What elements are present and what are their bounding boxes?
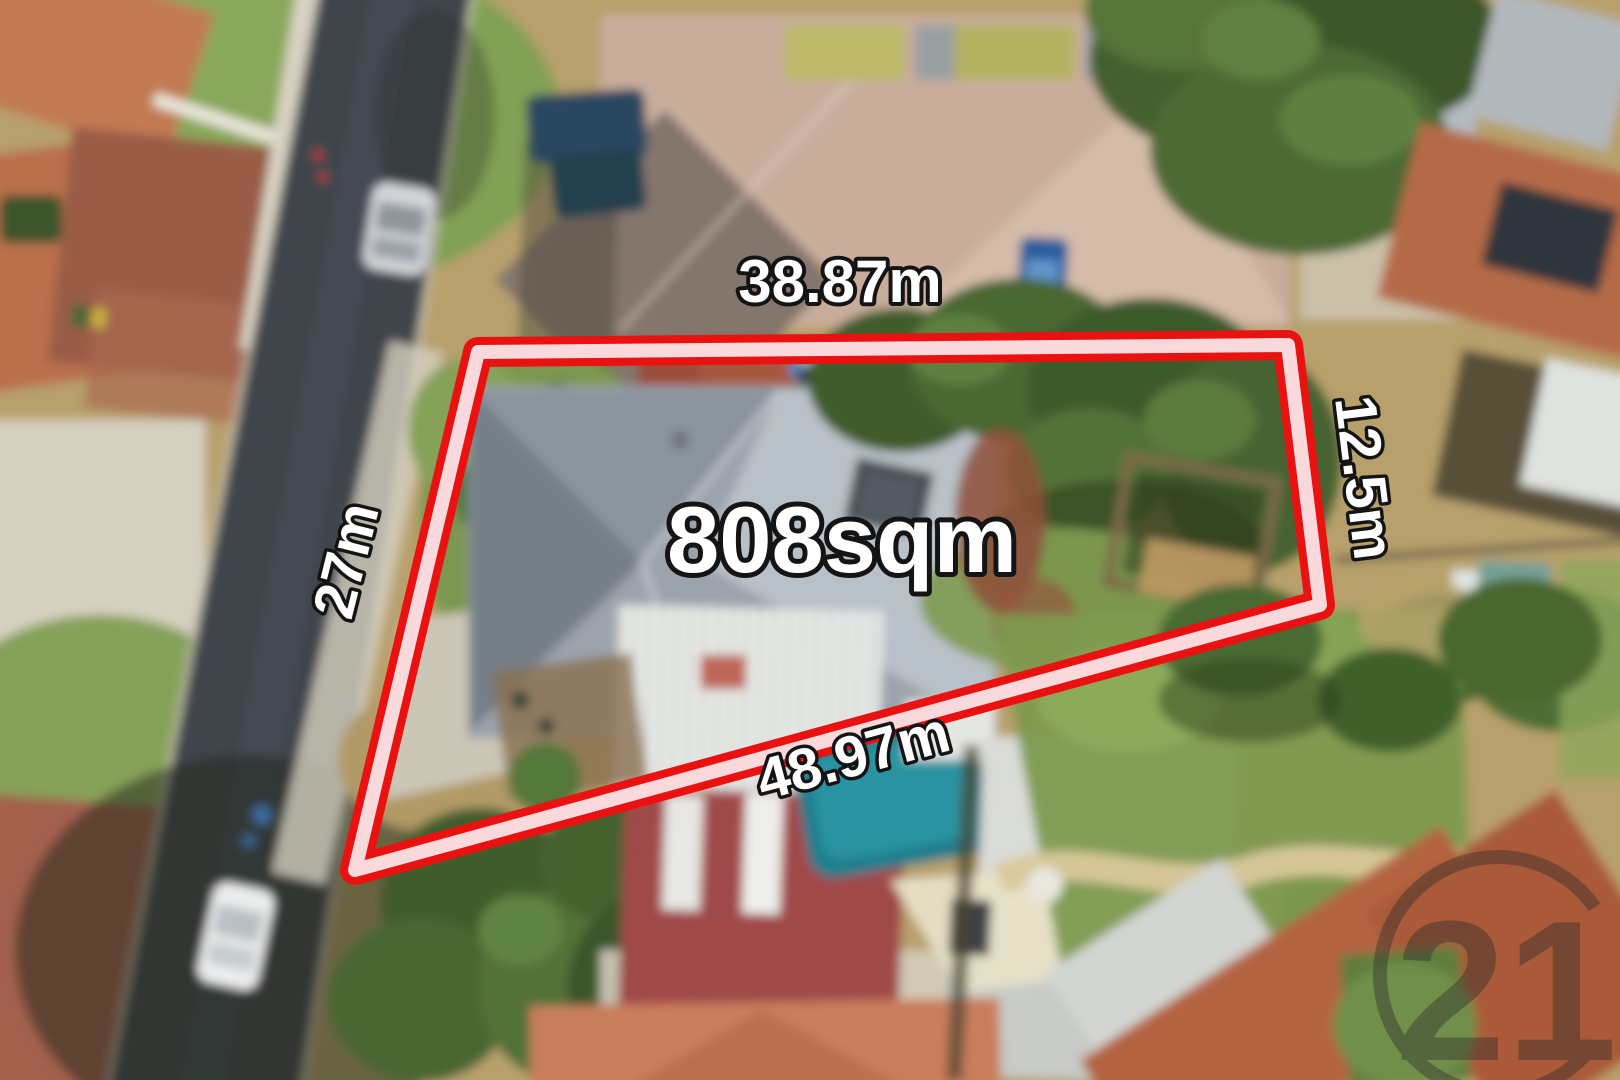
dark-vehicle bbox=[549, 147, 647, 218]
pedestrian bbox=[318, 172, 328, 182]
solar-hot-water bbox=[700, 655, 746, 689]
area-label: 808sqm bbox=[667, 487, 1017, 592]
century-21-numerals: 21 bbox=[1395, 880, 1617, 1080]
top-dimension-label: 38.87m bbox=[738, 248, 942, 315]
salmon-roof bbox=[529, 998, 1000, 1080]
photo-canvas: 38.87m 808sqm 12.5m 27m 48.97m 21 bbox=[0, 0, 1620, 1080]
pedestrian bbox=[313, 150, 323, 160]
silver-car bbox=[361, 180, 438, 277]
aerial-property-photo: 38.87m 808sqm 12.5m 27m 48.97m 21 bbox=[0, 0, 1620, 1080]
